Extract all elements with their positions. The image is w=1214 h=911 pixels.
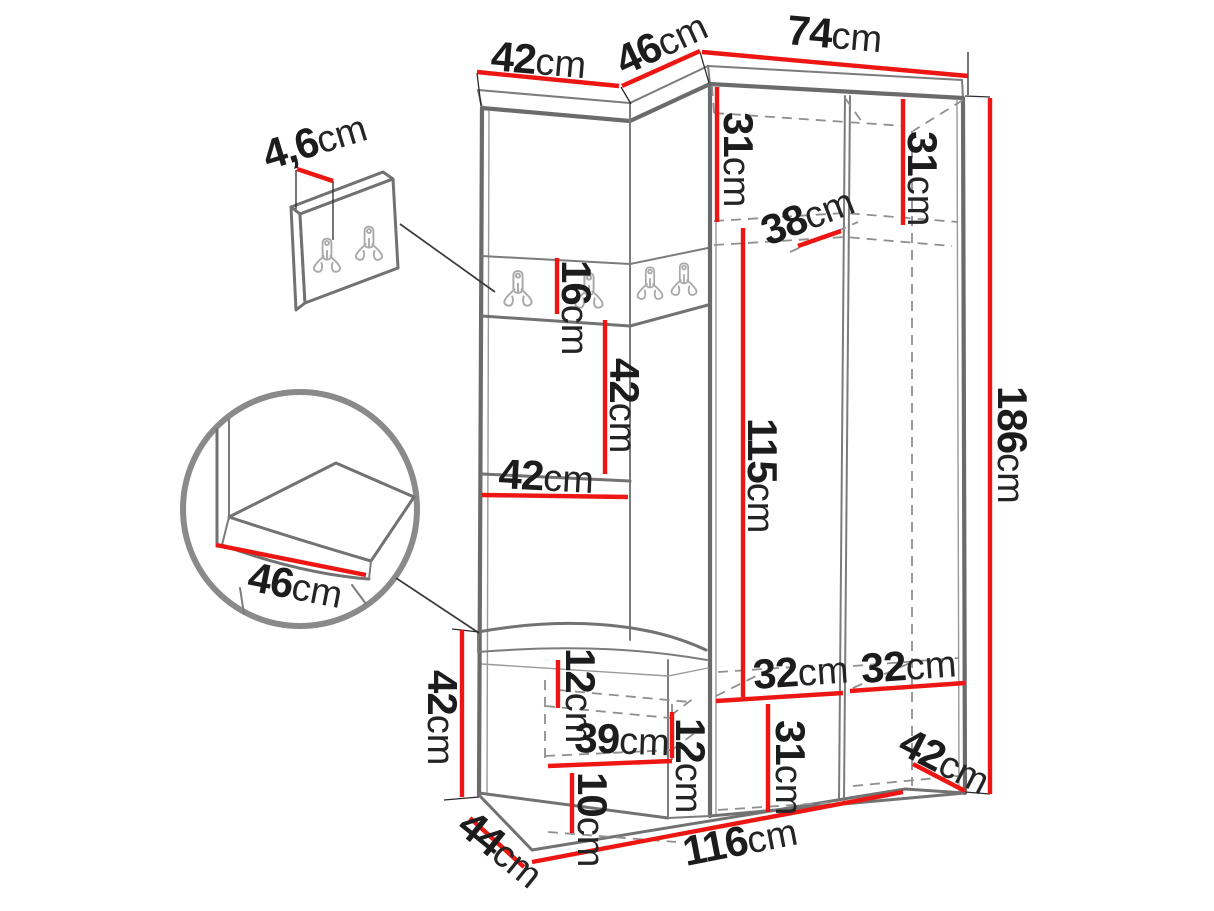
dim-top-width-right: 74cm [785,6,884,61]
pointer-line-seat [396,578,479,633]
dim-total-height: 186cm [989,386,1036,504]
dim-top-shelf-left-height: 31cm [715,112,762,207]
dim-bench-shelf-width: 39cm [574,714,671,764]
dim-panel-thickness: 4,6cm [257,103,372,179]
dim-bench-shelf-gap: 12cm [667,718,714,813]
coat-hook-icon [638,267,663,299]
coat-hook-icon [672,263,697,295]
dim-compartment-left-width: 32cm [751,644,849,698]
dim-line-panel-thickness [297,169,333,181]
dim-top-width-left: 42cm [489,32,588,87]
dim-hook-panel-height: 16cm [553,260,600,355]
dim-niche-width: 42cm [498,450,596,502]
dim-niche-height: 42cm [601,358,648,453]
diagram-canvas: 42cm 46cm 74cm 4,6cm 31cm 31cm 38cm 16cm… [0,0,1214,911]
dim-top-shelf-right-height: 31cm [899,131,946,226]
furniture-dimension-drawing: 42cm 46cm 74cm 4,6cm 31cm 31cm 38cm 16cm… [0,0,1214,911]
dim-bottom-section-height: 31cm [767,720,814,815]
dim-top-width-corner: 46cm [608,1,714,84]
wall-hook-panel [291,170,398,310]
dim-bench-lower-gap: 10cm [569,772,616,867]
coat-hook-icon [504,271,531,306]
dim-compartment-right-width: 32cm [859,638,957,692]
dim-hanging-space-height: 115cm [739,418,786,533]
dim-bench-height: 42cm [419,670,466,765]
